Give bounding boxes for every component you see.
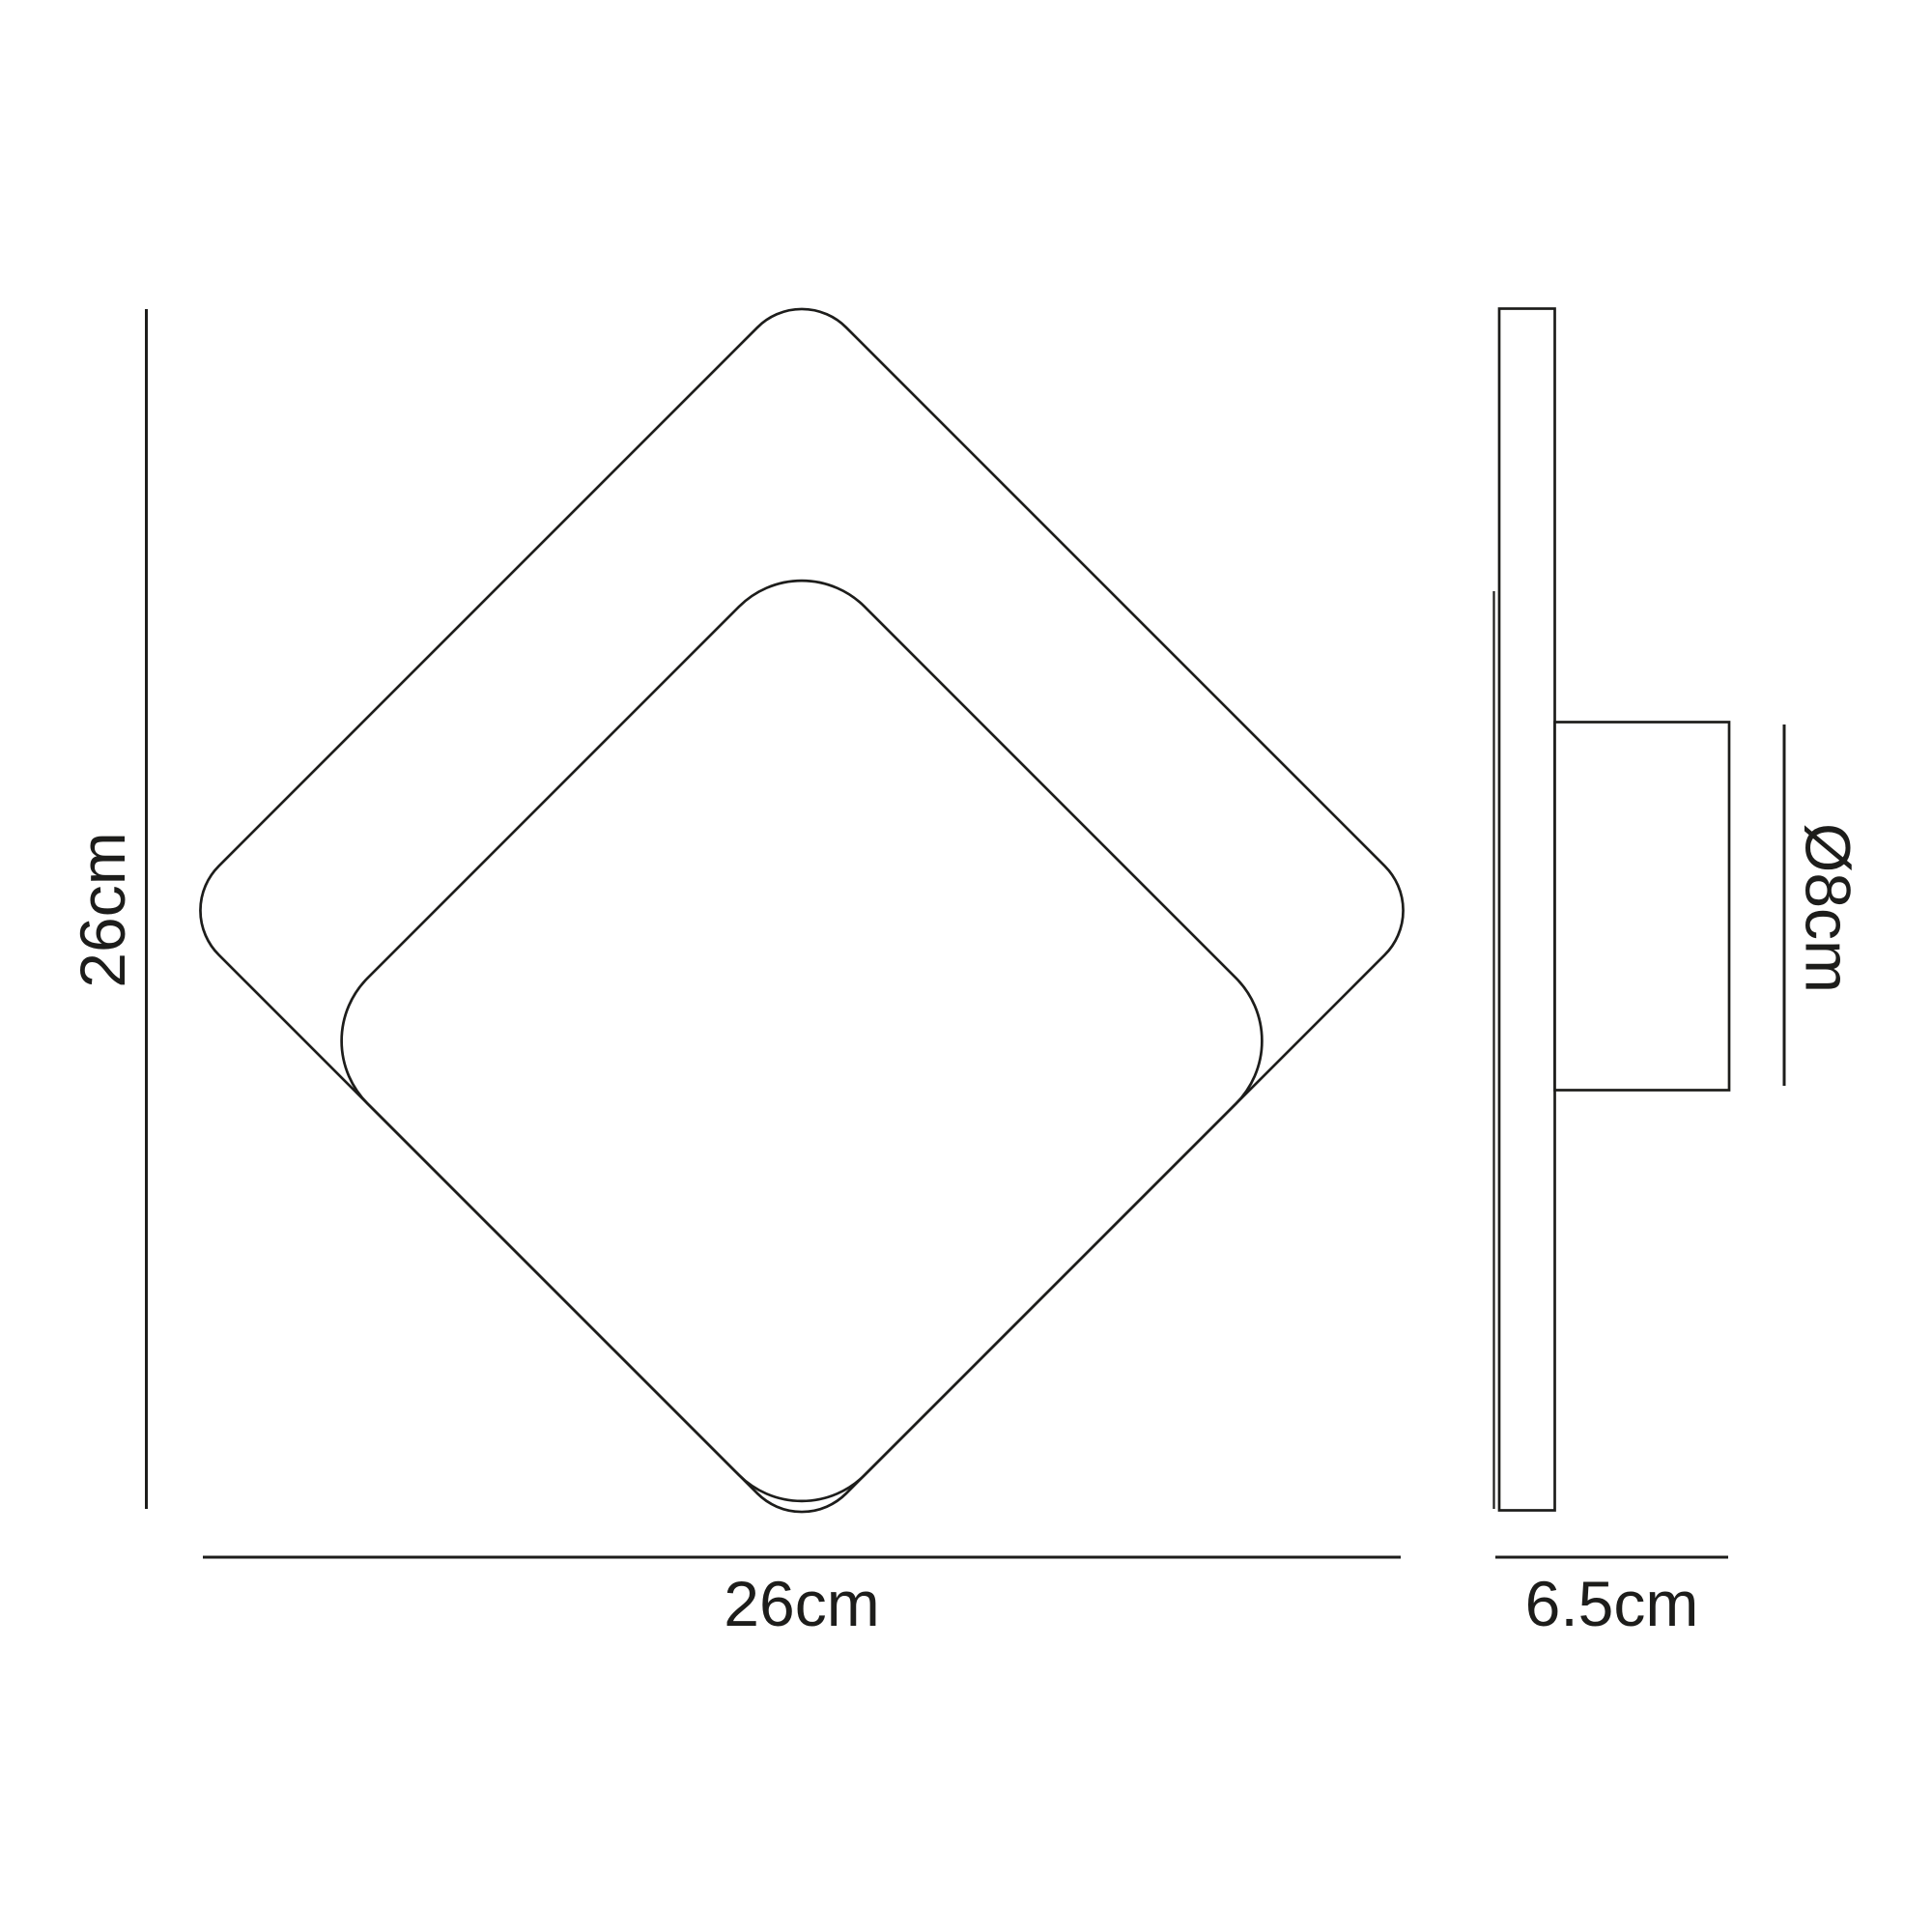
svg-text:26cm: 26cm [67,832,138,987]
svg-text:26cm: 26cm [724,1568,879,1639]
svg-text:Ø8cm: Ø8cm [1793,823,1864,993]
svg-text:6.5cm: 6.5cm [1525,1568,1699,1639]
